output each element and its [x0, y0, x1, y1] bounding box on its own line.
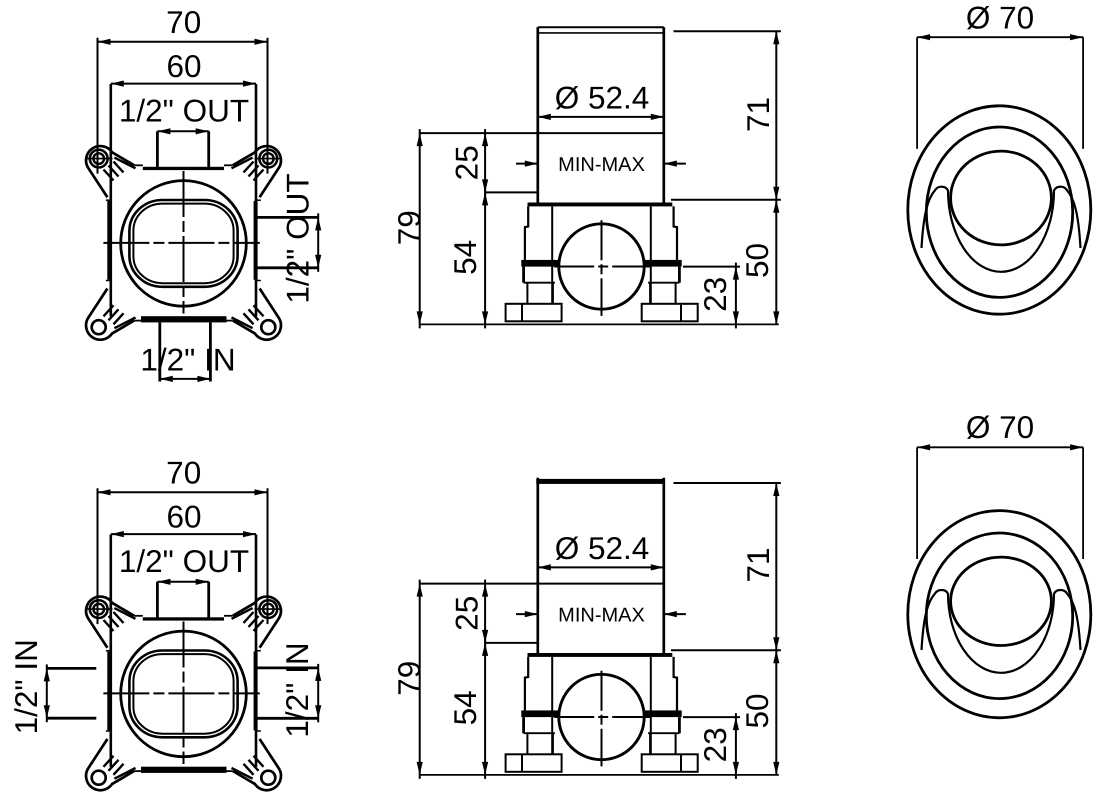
svg-text:Ø 52.4: Ø 52.4	[555, 80, 650, 116]
svg-text:1/2" IN: 1/2" IN	[279, 642, 315, 737]
svg-text:54: 54	[447, 690, 483, 725]
svg-text:71: 71	[740, 547, 776, 582]
svg-text:1/2" OUT: 1/2" OUT	[280, 173, 316, 303]
svg-text:1/2" OUT: 1/2" OUT	[119, 92, 249, 128]
svg-text:71: 71	[740, 97, 776, 132]
svg-text:MIN-MAX: MIN-MAX	[558, 604, 645, 626]
svg-text:25: 25	[449, 145, 485, 180]
svg-text:60: 60	[166, 48, 201, 84]
svg-text:Ø 70: Ø 70	[966, 0, 1034, 36]
svg-text:23: 23	[697, 727, 733, 762]
svg-text:1/2" IN: 1/2" IN	[8, 639, 44, 734]
svg-text:50: 50	[739, 243, 775, 278]
svg-text:MIN-MAX: MIN-MAX	[558, 154, 645, 176]
svg-text:1/2" IN: 1/2" IN	[140, 341, 235, 377]
svg-text:70: 70	[166, 455, 201, 491]
svg-text:70: 70	[166, 4, 201, 40]
svg-text:54: 54	[447, 240, 483, 275]
svg-text:79: 79	[391, 210, 427, 245]
svg-text:50: 50	[739, 693, 775, 728]
svg-text:23: 23	[697, 277, 733, 312]
svg-text:25: 25	[449, 596, 485, 631]
svg-text:60: 60	[166, 499, 201, 535]
svg-text:79: 79	[391, 661, 427, 696]
svg-text:Ø 52.4: Ø 52.4	[555, 530, 650, 566]
svg-text:1/2" OUT: 1/2" OUT	[119, 543, 249, 579]
svg-text:Ø 70: Ø 70	[966, 409, 1034, 445]
